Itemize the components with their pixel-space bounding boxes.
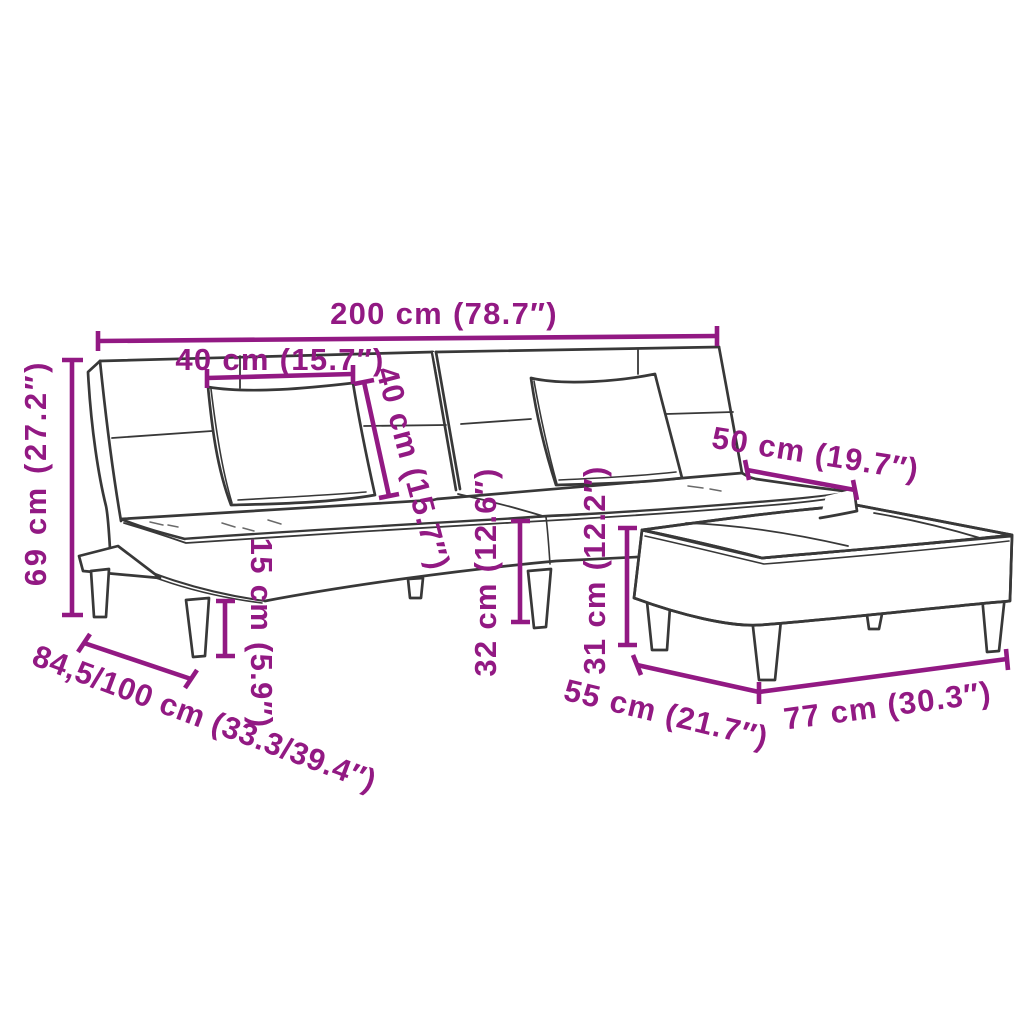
svg-text:32 cm (12.6″): 32 cm (12.6″) [468,467,503,676]
svg-text:40 cm (15.7″): 40 cm (15.7″) [175,342,384,377]
svg-text:15 cm (5.9″): 15 cm (5.9″) [244,538,279,729]
svg-text:69 cm (27.2″): 69 cm (27.2″) [18,360,53,586]
svg-text:31 cm (12.2″): 31 cm (12.2″) [577,465,612,674]
svg-text:200 cm (78.7″): 200 cm (78.7″) [330,296,558,331]
